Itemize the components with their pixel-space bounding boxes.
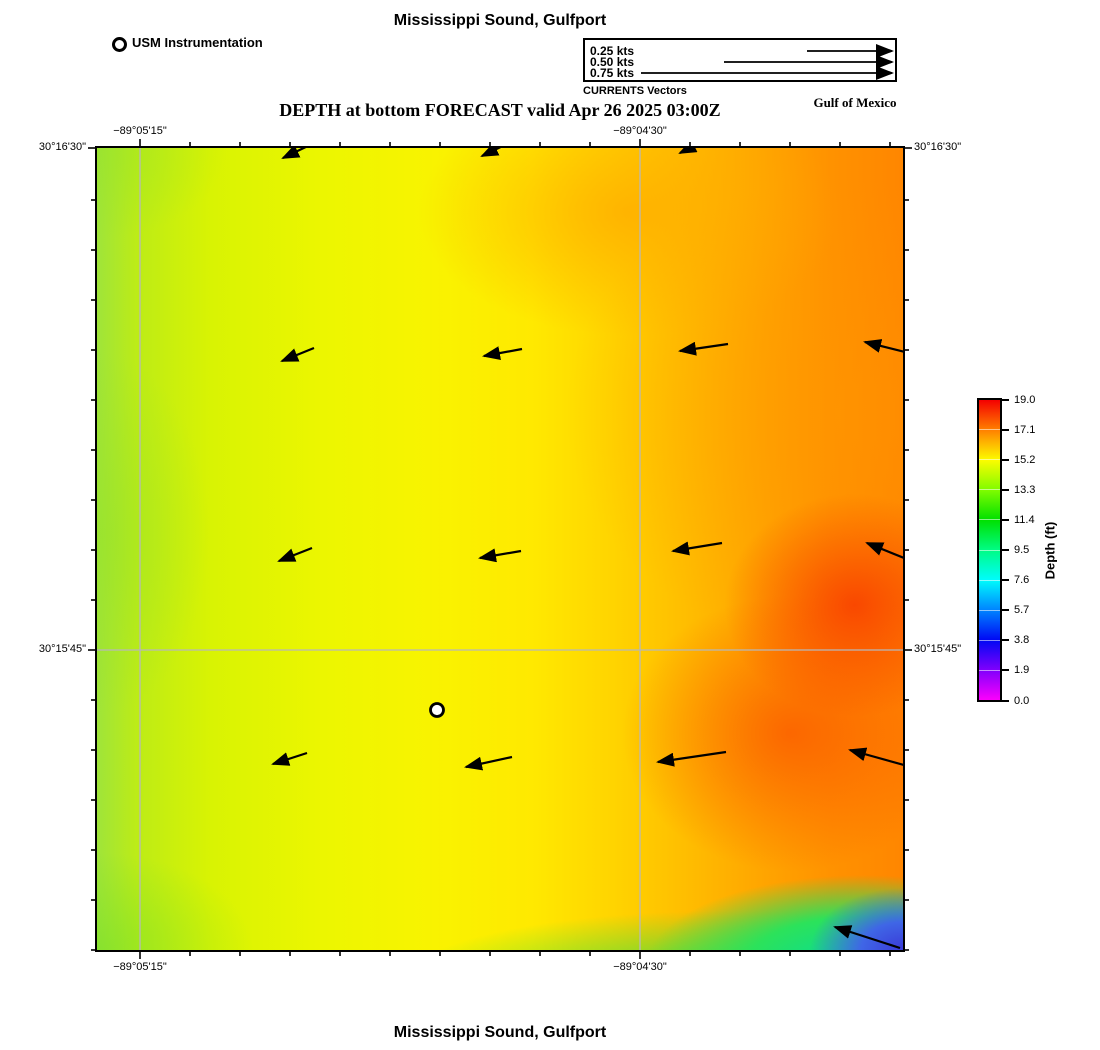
colorbar-tick bbox=[1002, 700, 1009, 702]
current-vector-arrow bbox=[466, 757, 512, 767]
current-vector-arrow bbox=[484, 349, 522, 356]
colorbar-tick bbox=[1002, 639, 1009, 641]
current-vector-arrow bbox=[283, 144, 312, 158]
region-label: Gulf of Mexico bbox=[780, 95, 930, 111]
colorbar-tick bbox=[1002, 609, 1009, 611]
colorbar-tick-label: 19.0 bbox=[1014, 393, 1035, 407]
current-vector-arrow bbox=[273, 753, 307, 764]
colorbar-divider bbox=[979, 610, 1000, 611]
current-vector-arrow bbox=[680, 139, 708, 153]
colorbar-tick-label: 9.5 bbox=[1014, 543, 1029, 557]
current-vector-arrow bbox=[480, 551, 521, 558]
current-vector-arrow bbox=[835, 927, 900, 948]
current-vector-arrow bbox=[482, 142, 511, 156]
colorbar-tick bbox=[1002, 549, 1009, 551]
colorbar-tick bbox=[1002, 399, 1009, 401]
colorbar-tick bbox=[1002, 429, 1009, 431]
colorbar-tick bbox=[1002, 579, 1009, 581]
colorbar-title: Depth (ft) bbox=[1043, 491, 1058, 611]
colorbar-divider bbox=[979, 580, 1000, 581]
map-overlay bbox=[67, 118, 933, 980]
colorbar-tick-label: 13.3 bbox=[1014, 483, 1035, 497]
colorbar-tick bbox=[1002, 669, 1009, 671]
current-vector-arrow bbox=[279, 548, 312, 561]
current-vector-arrow bbox=[282, 348, 314, 361]
colorbar-tick bbox=[1002, 519, 1009, 521]
colorbar-tick-label: 3.8 bbox=[1014, 633, 1029, 647]
colorbar-tick-label: 7.6 bbox=[1014, 573, 1029, 587]
current-vector-arrow bbox=[865, 342, 909, 353]
colorbar-tick-label: 11.4 bbox=[1014, 513, 1035, 527]
map-panel bbox=[95, 146, 905, 952]
colorbar-tick-label: 1.9 bbox=[1014, 663, 1029, 677]
current-vector-arrow bbox=[867, 543, 909, 560]
station-marker bbox=[431, 704, 444, 717]
colorbar-divider bbox=[979, 519, 1000, 520]
forecast-figure: Mississippi Sound, Gulfport USM Instrume… bbox=[0, 0, 1100, 1050]
colorbar-tick-label: 0.0 bbox=[1014, 694, 1029, 708]
colorbar-divider bbox=[979, 640, 1000, 641]
current-vector-arrow bbox=[680, 344, 728, 351]
colorbar-tick-label: 15.2 bbox=[1014, 453, 1035, 467]
colorbar-divider bbox=[979, 670, 1000, 671]
current-scale-legend: 0.25 kts 0.50 kts 0.75 kts bbox=[583, 38, 897, 82]
colorbar-divider bbox=[979, 550, 1000, 551]
footer-title: Mississippi Sound, Gulfport bbox=[97, 1024, 903, 1042]
current-vector-arrow bbox=[850, 750, 911, 767]
station-marker-icon bbox=[112, 37, 127, 52]
current-vector-arrow bbox=[673, 543, 722, 551]
colorbar-tick-label: 5.7 bbox=[1014, 603, 1029, 617]
colorbar-divider bbox=[979, 459, 1000, 460]
station-legend-label: USM Instrumentation bbox=[132, 35, 263, 50]
scale-arrows bbox=[585, 40, 895, 80]
colorbar-tick-label: 17.1 bbox=[1014, 423, 1035, 437]
colorbar-divider bbox=[979, 489, 1000, 490]
vector-legend-caption: CURRENTS Vectors bbox=[583, 85, 687, 97]
colorbar-tick bbox=[1002, 459, 1009, 461]
colorbar-divider bbox=[979, 429, 1000, 430]
colorbar-tick bbox=[1002, 489, 1009, 491]
page-title: Mississippi Sound, Gulfport bbox=[97, 12, 903, 30]
current-vector-arrow bbox=[658, 752, 726, 762]
